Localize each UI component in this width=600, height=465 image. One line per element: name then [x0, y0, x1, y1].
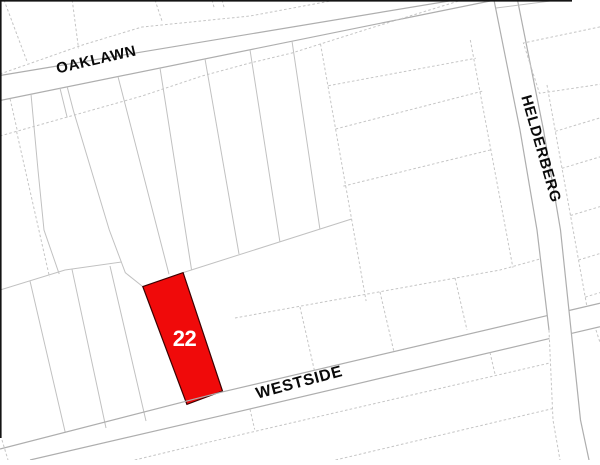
- svg-text:22: 22: [173, 326, 197, 351]
